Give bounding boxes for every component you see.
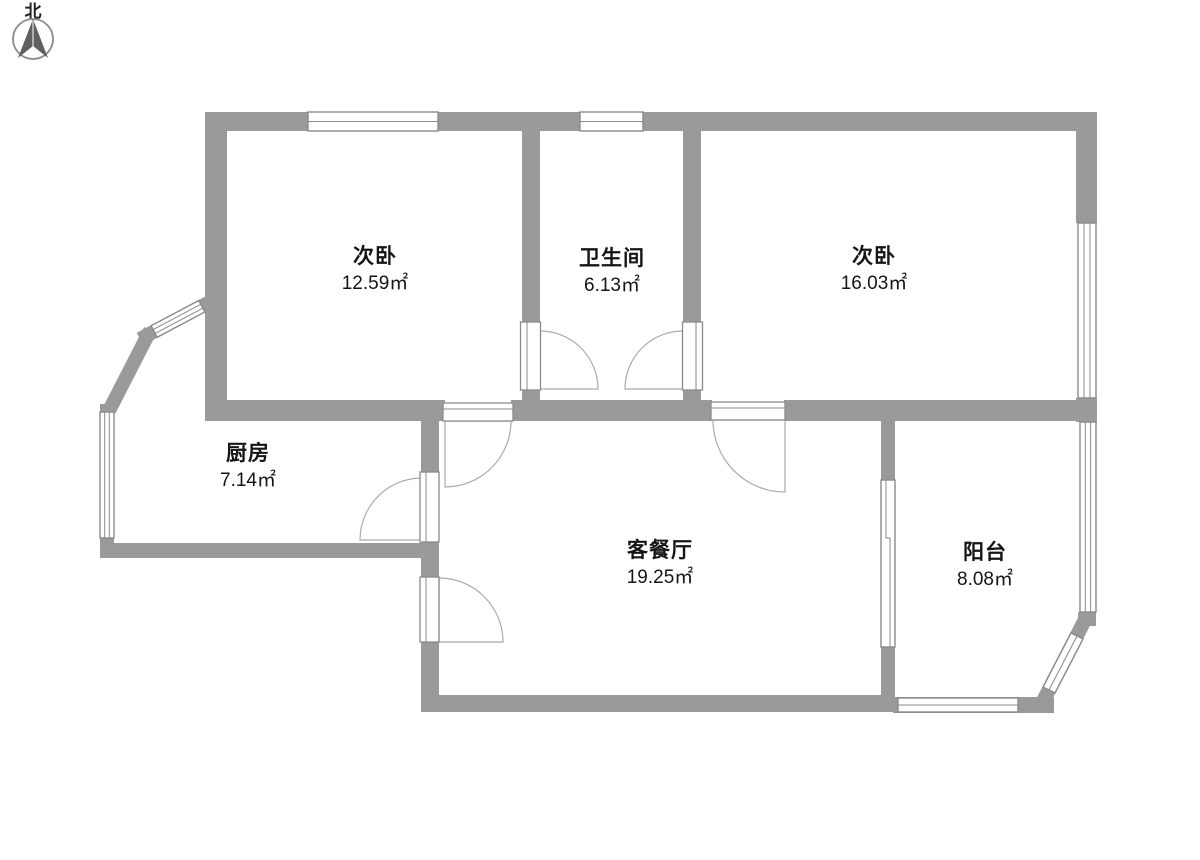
room-name: 阳台 (957, 540, 1013, 566)
room-area: 12.59㎡ (342, 270, 409, 297)
compass: 北 (13, 2, 53, 59)
door-panel-kitchen (420, 472, 439, 542)
sliding-door-living-balcony (881, 480, 895, 647)
door-arc-entrance (439, 578, 503, 642)
wall-living-south (421, 695, 886, 712)
window-bathroom-north (580, 112, 643, 131)
room-area: 8.08㎡ (957, 566, 1013, 593)
door-panel-bedroom-left-living (443, 403, 513, 421)
door-panel-bedroom-right-living (711, 402, 785, 420)
window-balcony-chamfer (1043, 633, 1083, 693)
wall-mid-west-segment (205, 400, 445, 421)
wall-kitchen-bay-lower (103, 327, 157, 413)
door-arc-bedroom-left-bathroom (540, 331, 598, 389)
room-label-kitchen: 厨房 7.14㎡ (220, 441, 276, 494)
room-name: 卫生间 (579, 246, 645, 272)
walls-layer (100, 112, 1097, 713)
wall-bedroom-left-west (205, 112, 227, 421)
floorplan-page: 北 次卧 12.59㎡ 卫生间 6.13㎡ 次卧 16.03㎡ 厨房 7.14㎡… (0, 0, 1200, 860)
room-label-living-dining: 客餐厅 19.25㎡ (627, 538, 694, 591)
window-bedroom-left-north (308, 112, 438, 131)
wall-east-upper (1076, 112, 1097, 223)
wall-bathroom-west (522, 131, 540, 322)
room-area: 6.13㎡ (579, 272, 645, 299)
door-arc-kitchen (360, 478, 422, 540)
door-arc-bedroom-left-living (445, 421, 511, 487)
door-panel-bedroom-left-bathroom (521, 322, 541, 390)
window-balcony-east (1080, 422, 1096, 612)
room-name: 客餐厅 (627, 538, 694, 564)
window-balcony-south (898, 698, 1018, 712)
room-label-bedroom-right: 次卧 16.03㎡ (841, 244, 908, 297)
room-name: 次卧 (342, 244, 409, 270)
room-name: 厨房 (220, 441, 276, 467)
wall-bathroom-east (683, 131, 701, 322)
room-area: 16.03㎡ (841, 270, 908, 297)
door-arc-bedroom-right-bathroom (625, 331, 683, 389)
wall-mid-center-segment (511, 400, 712, 421)
room-name: 次卧 (841, 244, 908, 270)
door-panel-bedroom-right-bathroom (683, 322, 703, 390)
window-bedroom-right-east (1078, 223, 1096, 398)
door-panel-entrance (420, 577, 439, 642)
door-arc-bedroom-right-living (713, 420, 785, 492)
room-label-balcony: 阳台 8.08㎡ (957, 540, 1013, 593)
room-area: 19.25㎡ (627, 564, 694, 591)
room-label-bedroom-left: 次卧 12.59㎡ (342, 244, 409, 297)
wall-kitchen-south (100, 543, 439, 558)
wall-balcony-divider-top (881, 400, 895, 480)
room-label-bathroom: 卫生间 6.13㎡ (579, 246, 645, 299)
window-kitchen-west (100, 412, 114, 538)
wall-mid-east-segment (784, 400, 1095, 421)
wall-living-west-1 (421, 400, 439, 472)
window-kitchen-bay (151, 300, 205, 337)
wall-kitchen-west-bottom (100, 538, 114, 558)
room-area: 7.14㎡ (220, 467, 276, 494)
floorplan-drawing: 北 (0, 0, 1200, 860)
